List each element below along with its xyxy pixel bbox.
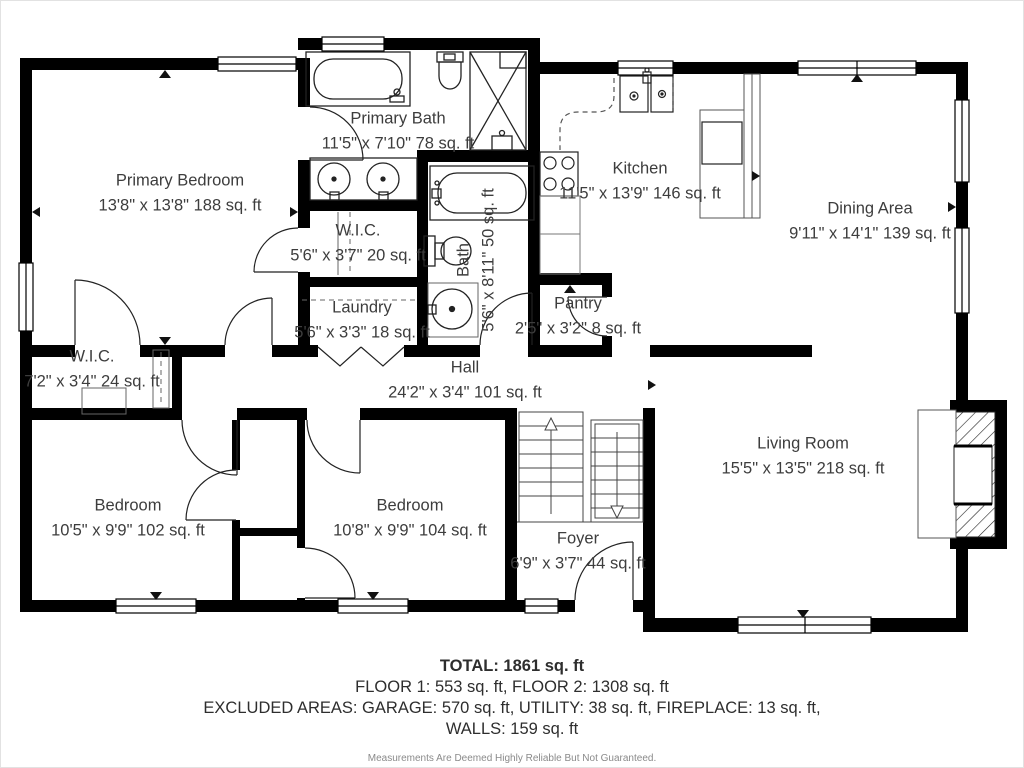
summary-excluded: EXCLUDED AREAS: GARAGE: 570 sq. ft, UTIL… — [0, 699, 1024, 718]
bathtub — [430, 166, 534, 220]
door — [310, 107, 363, 160]
fixtures-primary-bath — [306, 52, 526, 200]
door — [182, 420, 237, 475]
toilet — [437, 52, 463, 89]
stove — [540, 152, 578, 196]
toilet — [424, 236, 471, 266]
front-door — [575, 542, 633, 600]
door — [186, 470, 236, 520]
windows — [19, 37, 969, 633]
summary-total: TOTAL: 1861 sq. ft — [0, 657, 1024, 676]
sink — [428, 283, 478, 337]
refrigerator — [702, 122, 742, 164]
door — [568, 297, 607, 336]
summary-floors: FLOOR 1: 553 sq. ft, FLOOR 2: 1308 sq. f… — [0, 678, 1024, 697]
bathtub — [306, 52, 410, 106]
counter-outline — [560, 78, 673, 150]
door — [225, 298, 272, 345]
door — [307, 420, 360, 473]
double-sink — [310, 158, 417, 200]
window — [525, 599, 558, 613]
window — [116, 599, 196, 613]
door — [480, 293, 532, 345]
window — [338, 599, 408, 613]
window — [218, 57, 296, 71]
door — [305, 548, 355, 598]
floor-plan-drawing — [0, 0, 1024, 655]
fireplace — [918, 410, 995, 538]
window — [955, 228, 969, 313]
door — [75, 280, 140, 345]
door — [254, 228, 298, 272]
floor-plan: Primary Bedroom 13'8" x 13'8" 188 sq. ft… — [0, 0, 1024, 768]
fixtures-kitchen — [540, 68, 760, 274]
bifold-door — [318, 347, 404, 366]
summary-walls: WALLS: 159 sq. ft — [0, 720, 1024, 739]
cabinets — [540, 196, 580, 274]
counter — [700, 74, 760, 218]
window — [798, 61, 916, 75]
fixtures-bath — [424, 166, 534, 337]
disclaimer-text: Measurements Are Deemed Highly Reliable … — [0, 753, 1024, 765]
window — [19, 263, 33, 331]
window — [322, 37, 384, 51]
shower — [470, 52, 526, 150]
window — [738, 617, 871, 633]
area-summary: TOTAL: 1861 sq. ft FLOOR 1: 553 sq. ft, … — [0, 655, 1024, 764]
window — [955, 100, 969, 182]
stairs — [517, 412, 643, 522]
